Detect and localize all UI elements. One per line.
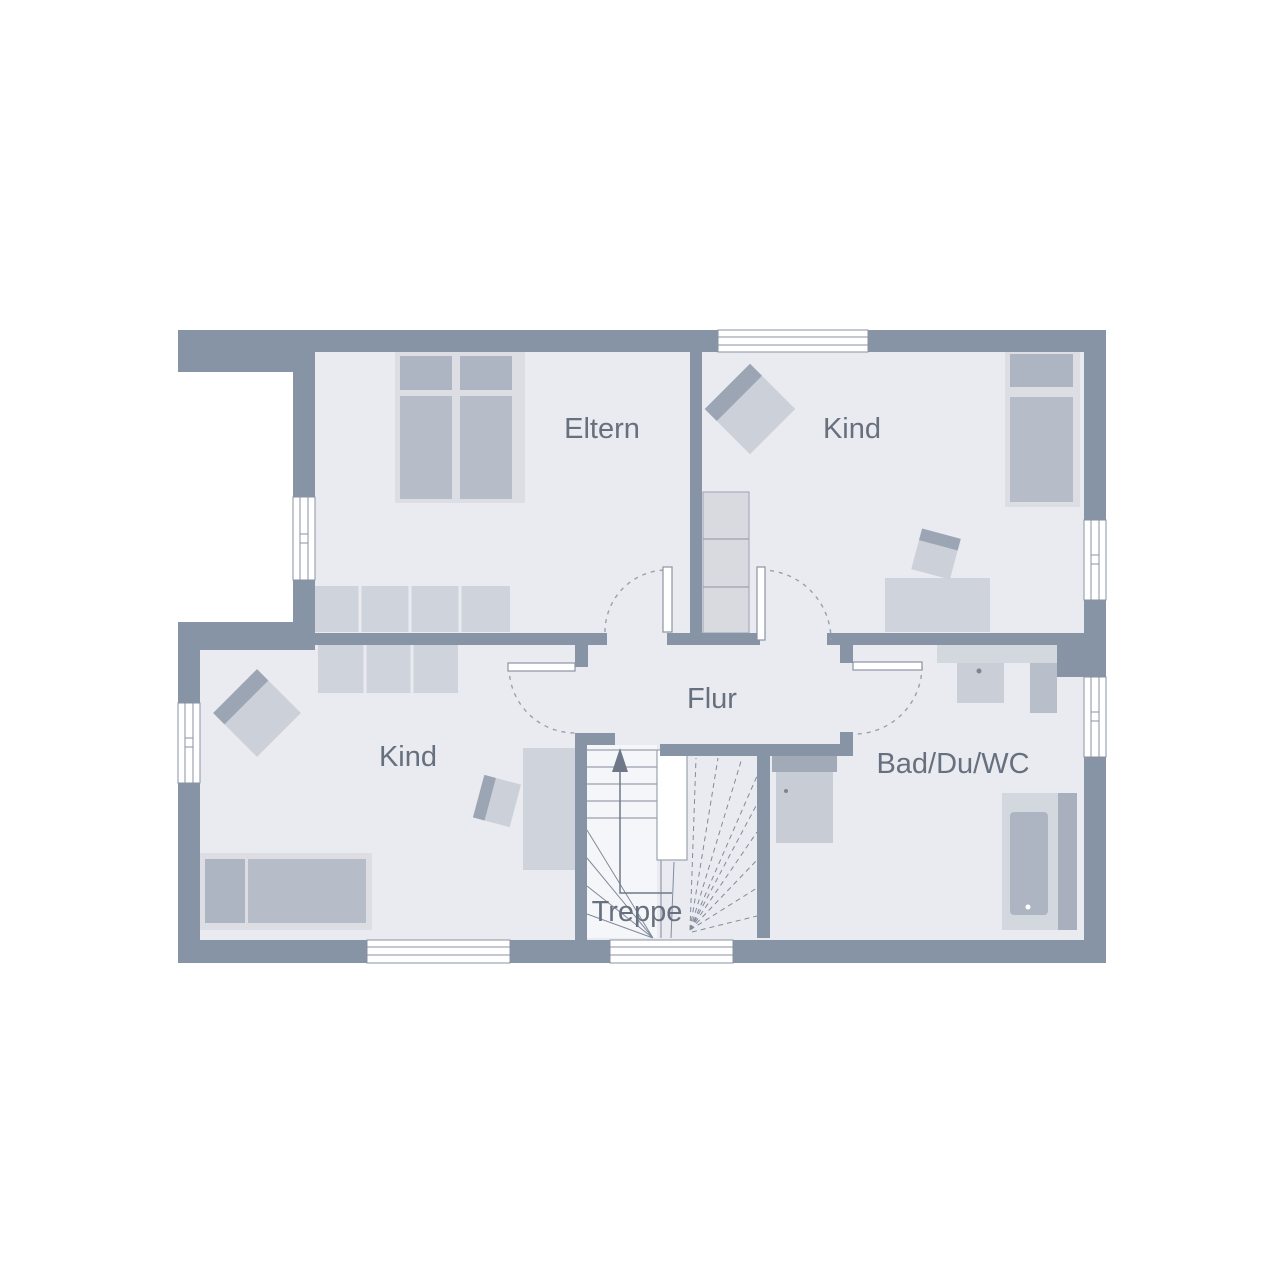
wall-interior-south-eltern [315,633,607,645]
wall-west-lower-upper [178,650,200,703]
wall-stub-shower [1057,643,1084,677]
wardrobe-eltern [310,586,510,632]
wall-west-lower-bottom [178,783,200,940]
wall-flur-south [660,744,840,756]
window-kind-bottom-west [178,703,200,783]
wall-stub-bad-door-lower [840,732,853,756]
wall-interior-flur-north [667,633,760,645]
wall-stair-west [575,733,587,940]
stair-void [657,750,687,860]
room-label-bad: Bad/Du/WC [876,748,1029,780]
room-label-kind-bottom: Kind [379,741,437,773]
wall-top-left-projection [178,330,310,372]
bathtub [1002,793,1077,930]
washbasin-faucet-dot [977,669,982,674]
bed-kind-bottom [200,853,372,930]
exterior-recess [178,372,293,622]
wall-east-upper [1084,352,1106,520]
double-bed-eltern [395,351,525,503]
wall-top-right-segment [868,330,1106,352]
wall-west-eltern-lower [293,580,315,622]
wall-bottom-left [178,940,367,963]
wall-stub-bad-door-upper [840,643,853,663]
wall-west-offset-block [178,622,315,650]
window-kind-bottom-south [367,940,510,963]
shelf-kind-top [703,492,749,633]
wall-east-lower [1084,757,1106,940]
wall-stair-east [757,756,770,938]
wall-west-eltern-upper [293,352,315,497]
room-label-eltern: Eltern [564,413,640,445]
wall-divider-eltern-kind [690,352,702,645]
wall-interior-bad-north [827,633,1084,645]
wall-stub-kind-bottom-door [575,645,588,667]
bathtub-drain-dot [1026,905,1031,910]
window-bad-east [1084,677,1106,757]
window-top [718,330,868,352]
wall-east-middle [1084,600,1106,677]
wall-stair-northwest-stub [575,733,615,745]
room-label-kind-top: Kind [823,413,881,445]
wall-bottom-right [733,940,1106,963]
window-eltern-west [293,497,315,580]
shower-block [1030,663,1057,713]
wall-bottom-middle [510,940,610,963]
window-kind-top-east [1084,520,1106,600]
window-stair-south [610,940,733,963]
bed-kind-top [1005,349,1080,507]
room-label-treppe: Treppe [592,896,683,928]
desk-kind-top [885,578,990,632]
desk-kind-bottom [523,748,577,870]
floor-plan-drawing: Eltern Kind Kind Flur Bad/Du/WC Treppe [0,0,1280,1280]
floor-plan-page: Eltern Kind Kind Flur Bad/Du/WC Treppe [0,0,1280,1280]
wardrobe-kind-bottom [318,645,458,693]
toilet-wc [772,756,837,843]
room-label-flur: Flur [687,683,737,715]
